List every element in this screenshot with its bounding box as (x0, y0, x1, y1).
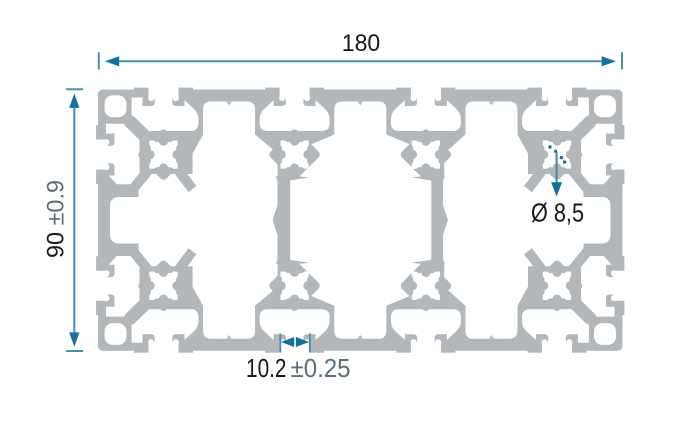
svg-text:10.2: 10.2 (246, 353, 287, 383)
svg-text:180: 180 (342, 30, 381, 57)
svg-text:±0.25: ±0.25 (291, 353, 351, 383)
svg-text:Ø 8,5: Ø 8,5 (531, 198, 584, 228)
svg-text:90 ±0.9: 90 ±0.9 (43, 180, 70, 258)
